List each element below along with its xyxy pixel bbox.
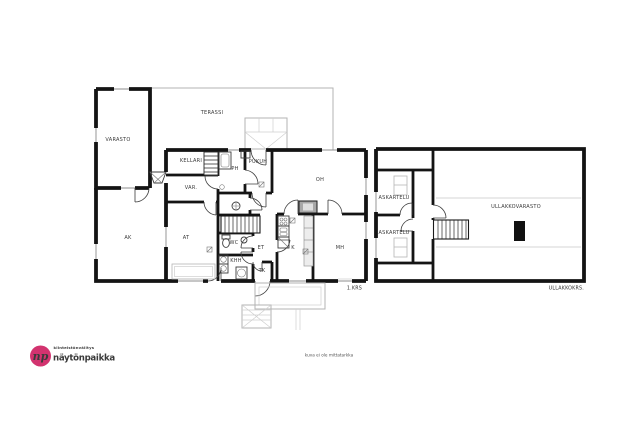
room-label-oh: OH <box>316 177 324 183</box>
room-label-tk: TK <box>258 268 266 274</box>
room-label-kellari: KELLARI <box>180 158 202 164</box>
floor1-caption: 1.KRS <box>347 286 362 292</box>
room-label-pukuh: PUKUH <box>249 159 268 165</box>
room-label-terassi: TERASSI <box>200 110 223 116</box>
room-label-khh: KHH <box>230 258 242 264</box>
disclaimer-text: kuva ei ole mittatarkka <box>305 353 354 358</box>
sauna-stove <box>232 202 240 210</box>
room-label-k: K <box>291 245 295 251</box>
attic-stairs <box>434 220 469 239</box>
attic-caption: ULLAKKOKRS. <box>549 286 584 292</box>
cellar-stairs <box>204 152 218 175</box>
room-label-mh: MH <box>336 245 345 251</box>
floorplan-drawing: VARASTO TERASSI KELLARI VAR. PH PUKUH OH… <box>0 0 640 427</box>
floorplan-page: VARASTO TERASSI KELLARI VAR. PH PUKUH OH… <box>0 0 640 427</box>
logo-monogram: np <box>33 350 49 363</box>
logo-tagline: kiinteistönvälitys <box>54 345 95 350</box>
fireplace <box>299 201 317 213</box>
room-label-askartelu-1: ASKARTELU <box>379 195 410 201</box>
room-label-wc: WC <box>230 240 239 246</box>
room-label-askartelu-2: ASKARTELU <box>379 230 410 236</box>
room-label-varasto: VARASTO <box>105 137 130 143</box>
room-label-at: AT <box>183 235 190 241</box>
room-label-ph: PH <box>231 166 238 172</box>
logo-brand-name: näytönpaikka <box>53 354 115 364</box>
room-label-ullakkovarasto: ULLAKKOVARASTO <box>491 204 541 210</box>
stairs-to-attic <box>221 216 260 233</box>
room-label-var: VAR. <box>185 185 198 191</box>
chimney <box>514 221 525 241</box>
room-label-ak: AK <box>124 235 132 241</box>
room-label-et: ET <box>258 245 265 251</box>
